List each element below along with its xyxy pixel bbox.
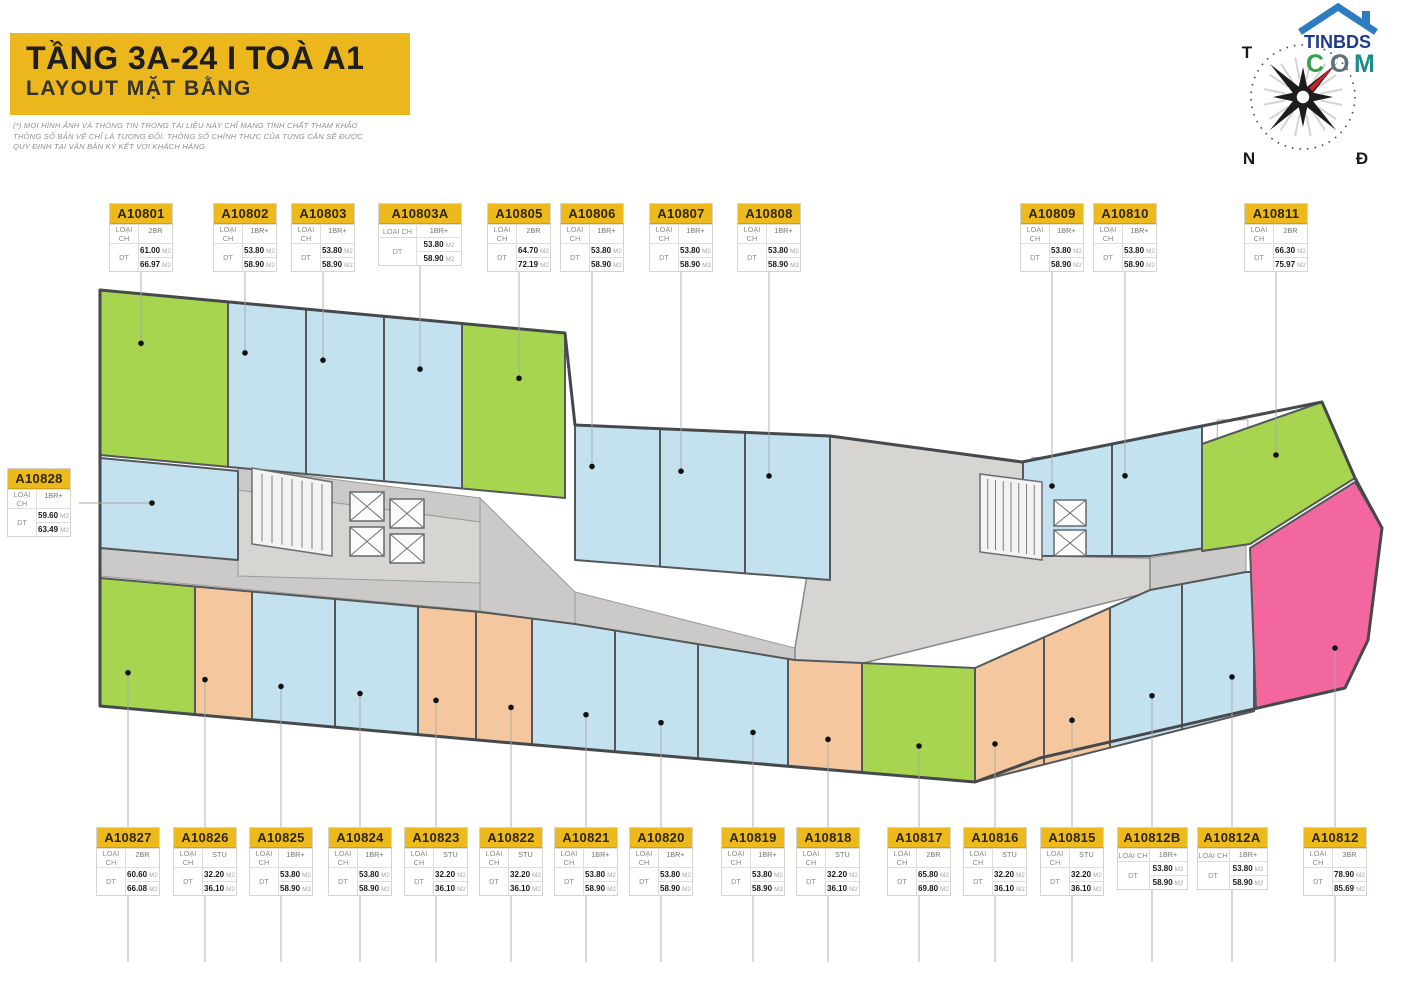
type-key: LOẠI CH bbox=[174, 849, 203, 867]
unit-type: 1BR+ bbox=[1150, 849, 1187, 861]
unit-type: 2BR bbox=[917, 849, 950, 861]
type-key: LOẠI CH bbox=[1304, 849, 1333, 867]
logo-chimney-icon bbox=[1362, 11, 1370, 25]
area-key: DT bbox=[174, 868, 203, 895]
unit-id: A10822 bbox=[480, 828, 542, 848]
unit-label-A10810[interactable]: A10810LOẠI CH1BR+DT53.80M258.90M2 bbox=[1093, 203, 1157, 272]
unit-area: 58.90M2 bbox=[1050, 257, 1083, 271]
unit-type: 1BR+ bbox=[659, 849, 692, 861]
unit-type: STU bbox=[434, 849, 467, 861]
corridor bbox=[480, 498, 575, 624]
area-key: DT bbox=[1021, 244, 1050, 271]
type-key: LOẠI CH bbox=[480, 849, 509, 867]
unit-type: STU bbox=[826, 849, 859, 861]
unit-A10801[interactable] bbox=[100, 290, 228, 467]
unit-area: 63.49M2 bbox=[37, 522, 70, 536]
unit-type: STU bbox=[203, 849, 236, 861]
unit-area: 53.80M2 bbox=[1150, 862, 1187, 875]
unit-id: A10811 bbox=[1245, 204, 1307, 224]
unit-id: A10816 bbox=[964, 828, 1026, 848]
unit-area: 32.20M2 bbox=[203, 868, 236, 881]
unit-type: 1BR+ bbox=[243, 225, 276, 237]
unit-area: 65.80M2 bbox=[917, 868, 950, 881]
unit-id: A10810 bbox=[1094, 204, 1156, 224]
unit-area: 53.80M2 bbox=[659, 868, 692, 881]
unit-type: 1BR+ bbox=[679, 225, 712, 237]
unit-area: 53.80M2 bbox=[1050, 244, 1083, 257]
type-key: LOẠI CH bbox=[405, 849, 434, 867]
area-key: DT bbox=[1304, 868, 1333, 895]
area-key: DT bbox=[738, 244, 767, 271]
unit-area: 32.20M2 bbox=[993, 868, 1026, 881]
type-key: LOẠI CH bbox=[964, 849, 993, 867]
type-key: LOẠI CH bbox=[1094, 225, 1123, 243]
unit-type: 3BR bbox=[1333, 849, 1366, 861]
unit-area: 53.80M2 bbox=[243, 244, 276, 257]
unit-area: 36.10M2 bbox=[1070, 881, 1103, 895]
unit-label-A10826[interactable]: A10826LOẠI CHSTUDT32.20M236.10M2 bbox=[173, 827, 237, 896]
unit-label-A10803[interactable]: A10803LOẠI CH1BR+DT53.80M258.90M2 bbox=[291, 203, 355, 272]
unit-A10817[interactable] bbox=[862, 663, 975, 782]
unit-id: A10827 bbox=[97, 828, 159, 848]
unit-area: 66.08M2 bbox=[126, 881, 159, 895]
unit-A10805[interactable] bbox=[462, 323, 565, 498]
unit-area: 58.90M2 bbox=[321, 257, 354, 271]
area-key: DT bbox=[1041, 868, 1070, 895]
type-key: LOẠI CH bbox=[292, 225, 321, 243]
unit-area: 66.30M2 bbox=[1274, 244, 1307, 257]
unit-id: A10820 bbox=[630, 828, 692, 848]
unit-label-A10806[interactable]: A10806LOẠI CH1BR+DT53.80M258.90M2 bbox=[560, 203, 624, 272]
title-banner: TẦNG 3A-24 I TOÀ A1 LAYOUT MẶT BẰNG bbox=[10, 33, 410, 115]
unit-label-A10821[interactable]: A10821LOẠI CH1BR+DT53.80M258.90M2 bbox=[554, 827, 618, 896]
area-key: DT bbox=[1118, 862, 1150, 889]
unit-area: 58.90M2 bbox=[358, 881, 391, 895]
type-key: LOẠI CH bbox=[1041, 849, 1070, 867]
unit-label-A10802[interactable]: A10802LOẠI CH1BR+DT53.80M258.90M2 bbox=[213, 203, 277, 272]
area-key: DT bbox=[292, 244, 321, 271]
unit-label-A10801[interactable]: A10801LOẠI CH2BRDT61.00M266.97M2 bbox=[109, 203, 173, 272]
unit-type: 1BR+ bbox=[1230, 849, 1267, 861]
area-key: DT bbox=[888, 868, 917, 895]
type-key: LOẠI CH bbox=[488, 225, 517, 243]
unit-area: 58.90M2 bbox=[1123, 257, 1156, 271]
unit-area: 58.90M2 bbox=[751, 881, 784, 895]
unit-type: 1BR+ bbox=[1050, 225, 1083, 237]
unit-type: 2BR bbox=[126, 849, 159, 861]
type-key: LOẠI CH bbox=[379, 225, 417, 237]
unit-A10824[interactable] bbox=[335, 599, 418, 735]
type-key: LOẠI CH bbox=[797, 849, 826, 867]
compass-letter-south: N bbox=[1243, 149, 1255, 168]
area-key: DT bbox=[1094, 244, 1123, 271]
unit-type: 1BR+ bbox=[321, 225, 354, 237]
unit-A10818[interactable] bbox=[788, 659, 862, 773]
unit-id: A10818 bbox=[797, 828, 859, 848]
unit-A10819[interactable] bbox=[698, 644, 788, 766]
unit-area: 58.90M2 bbox=[243, 257, 276, 271]
type-key: LOẠI CH bbox=[555, 849, 584, 867]
unit-area: 59.60M2 bbox=[37, 509, 70, 522]
unit-label-A10816[interactable]: A10816LOẠI CHSTUDT32.20M236.10M2 bbox=[963, 827, 1027, 896]
unit-area: 36.10M2 bbox=[434, 881, 467, 895]
type-key: LOẠI CH bbox=[329, 849, 358, 867]
area-key: DT bbox=[555, 868, 584, 895]
area-key: DT bbox=[214, 244, 243, 271]
area-key: DT bbox=[630, 868, 659, 895]
logo-text-letter: O bbox=[1330, 50, 1349, 78]
unit-area: 58.90M2 bbox=[659, 881, 692, 895]
unit-label-A10820[interactable]: A10820LOẠI CH1BR+DT53.80M258.90M2 bbox=[629, 827, 693, 896]
unit-area: 53.80M2 bbox=[679, 244, 712, 257]
area-key: DT bbox=[8, 509, 37, 536]
unit-area: 58.90M2 bbox=[279, 881, 312, 895]
unit-area: 58.90M2 bbox=[417, 251, 461, 265]
area-key: DT bbox=[1245, 244, 1274, 271]
unit-type: 1BR+ bbox=[751, 849, 784, 861]
unit-label-A10818[interactable]: A10818LOẠI CHSTUDT32.20M236.10M2 bbox=[796, 827, 860, 896]
unit-A10826[interactable] bbox=[195, 587, 252, 720]
area-key: DT bbox=[110, 244, 139, 271]
area-key: DT bbox=[650, 244, 679, 271]
area-key: DT bbox=[722, 868, 751, 895]
unit-A10812B[interactable] bbox=[1110, 584, 1182, 748]
unit-label-A10811[interactable]: A10811LOẠI CH2BRDT66.30M275.97M2 bbox=[1244, 203, 1308, 272]
unit-area: 53.80M2 bbox=[767, 244, 800, 257]
unit-id: A10803 bbox=[292, 204, 354, 224]
unit-area: 36.10M2 bbox=[509, 881, 542, 895]
area-key: DT bbox=[480, 868, 509, 895]
unit-label-A10803A[interactable]: A10803ALOẠI CH1BR+DT53.80M258.90M2 bbox=[378, 203, 462, 266]
type-key: LOẠI CH bbox=[650, 225, 679, 243]
unit-label-A10823[interactable]: A10823LOẠI CHSTUDT32.20M236.10M2 bbox=[404, 827, 468, 896]
unit-id: A10815 bbox=[1041, 828, 1103, 848]
type-key: LOẠI CH bbox=[738, 225, 767, 243]
unit-area: 58.90M2 bbox=[679, 257, 712, 271]
unit-area: 32.20M2 bbox=[434, 868, 467, 881]
unit-A10802[interactable] bbox=[228, 302, 306, 474]
unit-type: 1BR+ bbox=[279, 849, 312, 861]
unit-A10810[interactable] bbox=[1112, 426, 1202, 556]
unit-id: A10809 bbox=[1021, 204, 1083, 224]
unit-area: 58.90M2 bbox=[584, 881, 617, 895]
unit-type: STU bbox=[993, 849, 1026, 861]
unit-label-A10812A[interactable]: A10812ALOẠI CH1BR+DT53.80M258.90M2 bbox=[1197, 827, 1268, 890]
unit-area: 36.10M2 bbox=[203, 881, 236, 895]
type-key: LOẠI CH bbox=[630, 849, 659, 867]
unit-type: 1BR+ bbox=[417, 225, 461, 237]
unit-area: 36.10M2 bbox=[993, 881, 1026, 895]
area-key: DT bbox=[97, 868, 126, 895]
unit-label-A10808[interactable]: A10808LOẠI CH1BR+DT53.80M258.90M2 bbox=[737, 203, 801, 272]
unit-id: A10806 bbox=[561, 204, 623, 224]
unit-area: 32.20M2 bbox=[509, 868, 542, 881]
unit-id: A10808 bbox=[738, 204, 800, 224]
unit-A10825[interactable] bbox=[252, 592, 335, 728]
unit-label-A10805[interactable]: A10805LOẠI CH2BRDT64.70M272.19M2 bbox=[487, 203, 551, 272]
type-key: LOẠI CH bbox=[1021, 225, 1050, 243]
unit-area: 85.69M2 bbox=[1333, 881, 1366, 895]
type-key: LOẠI CH bbox=[722, 849, 751, 867]
type-key: LOẠI CH bbox=[97, 849, 126, 867]
page-title: TẦNG 3A-24 I TOÀ A1 bbox=[26, 40, 394, 76]
unit-area: 53.80M2 bbox=[321, 244, 354, 257]
unit-id: A10828 bbox=[8, 469, 70, 489]
unit-A10812A[interactable] bbox=[1182, 572, 1254, 729]
area-key: DT bbox=[1198, 862, 1230, 889]
unit-area: 53.80M2 bbox=[590, 244, 623, 257]
unit-label-A10807[interactable]: A10807LOẠI CH1BR+DT53.80M258.90M2 bbox=[649, 203, 713, 272]
compass-letter-west: T bbox=[1242, 43, 1253, 62]
unit-area: 58.90M2 bbox=[1230, 875, 1267, 889]
unit-label-A10817[interactable]: A10817LOẠI CH2BRDT65.80M269.80M2 bbox=[887, 827, 951, 896]
type-key: LOẠI CH bbox=[214, 225, 243, 243]
area-key: DT bbox=[561, 244, 590, 271]
unit-A10808[interactable] bbox=[745, 432, 830, 580]
unit-label-A10828[interactable]: A10828LOẠI CH1BR+DT59.60M263.49M2 bbox=[7, 468, 71, 537]
unit-id: A10824 bbox=[329, 828, 391, 848]
unit-area: 32.20M2 bbox=[1070, 868, 1103, 881]
unit-id: A10812 bbox=[1304, 828, 1366, 848]
floorplan-page: TNĐTINBDSCOM TẦNG 3A-24 I TOÀ A1 LAYOUT … bbox=[0, 0, 1417, 1001]
unit-area: 53.80M2 bbox=[1123, 244, 1156, 257]
unit-id: A10825 bbox=[250, 828, 312, 848]
unit-id: A10807 bbox=[650, 204, 712, 224]
type-key: LOẠI CH bbox=[8, 490, 37, 508]
unit-id: A10802 bbox=[214, 204, 276, 224]
unit-label-A10809[interactable]: A10809LOẠI CH1BR+DT53.80M258.90M2 bbox=[1020, 203, 1084, 272]
unit-label-A10812[interactable]: A10812LOẠI CH3BRDT78.90M285.69M2 bbox=[1303, 827, 1367, 896]
unit-area: 53.80M2 bbox=[417, 238, 461, 251]
unit-area: 36.10M2 bbox=[826, 881, 859, 895]
area-key: DT bbox=[329, 868, 358, 895]
tinbds-logo: TINBDSCOM bbox=[1300, 7, 1376, 78]
compass-letter-east: Đ bbox=[1356, 149, 1368, 168]
area-key: DT bbox=[405, 868, 434, 895]
area-key: DT bbox=[797, 868, 826, 895]
unit-label-A10824[interactable]: A10824LOẠI CH1BR+DT53.80M258.90M2 bbox=[328, 827, 392, 896]
unit-label-A10827[interactable]: A10827LOẠI CH2BRDT60.60M266.08M2 bbox=[96, 827, 160, 896]
unit-label-A10822[interactable]: A10822LOẠI CHSTUDT32.20M236.10M2 bbox=[479, 827, 543, 896]
unit-type: 1BR+ bbox=[584, 849, 617, 861]
unit-label-A10812B[interactable]: A10812BLOẠI CH1BR+DT53.80M258.90M2 bbox=[1117, 827, 1188, 890]
unit-area: 53.80M2 bbox=[1230, 862, 1267, 875]
type-key: LOẠI CH bbox=[561, 225, 590, 243]
unit-A10803[interactable] bbox=[306, 309, 384, 481]
unit-area: 61.00M2 bbox=[139, 244, 172, 257]
unit-type: 2BR bbox=[1274, 225, 1307, 237]
unit-area: 78.90M2 bbox=[1333, 868, 1366, 881]
type-key: LOẠI CH bbox=[888, 849, 917, 867]
unit-id: A10812A bbox=[1198, 828, 1267, 848]
unit-id: A10812B bbox=[1118, 828, 1187, 848]
unit-id: A10803A bbox=[379, 204, 461, 224]
unit-label-A10819[interactable]: A10819LOẠI CH1BR+DT53.80M258.90M2 bbox=[721, 827, 785, 896]
unit-area: 72.19M2 bbox=[517, 257, 550, 271]
unit-type: 2BR bbox=[517, 225, 550, 237]
logo-text-letter: M bbox=[1354, 50, 1375, 78]
unit-A10803A[interactable] bbox=[384, 316, 462, 488]
unit-id: A10817 bbox=[888, 828, 950, 848]
unit-type: STU bbox=[509, 849, 542, 861]
unit-id: A10801 bbox=[110, 204, 172, 224]
unit-type: 1BR+ bbox=[37, 490, 70, 502]
unit-id: A10826 bbox=[174, 828, 236, 848]
unit-area: 66.97M2 bbox=[139, 257, 172, 271]
unit-A10821[interactable] bbox=[532, 619, 615, 752]
type-key: LOẠI CH bbox=[1118, 849, 1150, 861]
unit-area: 53.80M2 bbox=[751, 868, 784, 881]
unit-type: STU bbox=[1070, 849, 1103, 861]
logo-text-top: TINBDS bbox=[1304, 32, 1371, 52]
area-key: DT bbox=[964, 868, 993, 895]
unit-label-A10815[interactable]: A10815LOẠI CHSTUDT32.20M236.10M2 bbox=[1040, 827, 1104, 896]
unit-id: A10805 bbox=[488, 204, 550, 224]
logo-text-letter: C bbox=[1306, 50, 1324, 78]
unit-type: 1BR+ bbox=[767, 225, 800, 237]
unit-type: 1BR+ bbox=[1123, 225, 1156, 237]
type-key: LOẠI CH bbox=[250, 849, 279, 867]
page-subtitle: LAYOUT MẶT BẰNG bbox=[26, 76, 394, 102]
unit-A10806[interactable] bbox=[575, 425, 660, 567]
type-key: LOẠI CH bbox=[110, 225, 139, 243]
unit-A10807[interactable] bbox=[660, 429, 745, 574]
type-key: LOẠI CH bbox=[1245, 225, 1274, 243]
unit-area: 58.90M2 bbox=[1150, 875, 1187, 889]
unit-A10828[interactable] bbox=[100, 458, 238, 560]
unit-A10815[interactable] bbox=[1044, 608, 1110, 765]
unit-label-A10825[interactable]: A10825LOẠI CH1BR+DT53.80M258.90M2 bbox=[249, 827, 313, 896]
unit-area: 75.97M2 bbox=[1274, 257, 1307, 271]
unit-id: A10823 bbox=[405, 828, 467, 848]
unit-area: 32.20M2 bbox=[826, 868, 859, 881]
disclaimer-text: (*) MỌI HÌNH ẢNH VÀ THÔNG TIN TRONG TÀI … bbox=[13, 121, 363, 153]
unit-A10820[interactable] bbox=[615, 631, 698, 759]
unit-area: 58.90M2 bbox=[767, 257, 800, 271]
type-key: LOẠI CH bbox=[1198, 849, 1230, 861]
area-key: DT bbox=[379, 238, 417, 265]
unit-A10823[interactable] bbox=[418, 606, 476, 739]
unit-area: 64.70M2 bbox=[517, 244, 550, 257]
area-key: DT bbox=[488, 244, 517, 271]
area-key: DT bbox=[250, 868, 279, 895]
unit-A10822[interactable] bbox=[476, 612, 532, 745]
unit-area: 60.60M2 bbox=[126, 868, 159, 881]
unit-area: 53.80M2 bbox=[279, 868, 312, 881]
unit-type: 2BR bbox=[139, 225, 172, 237]
unit-area: 53.80M2 bbox=[358, 868, 391, 881]
unit-type: 1BR+ bbox=[590, 225, 623, 237]
unit-A10827[interactable] bbox=[100, 578, 195, 715]
unit-area: 58.90M2 bbox=[590, 257, 623, 271]
unit-area: 53.80M2 bbox=[584, 868, 617, 881]
unit-id: A10821 bbox=[555, 828, 617, 848]
unit-type: 1BR+ bbox=[358, 849, 391, 861]
unit-id: A10819 bbox=[722, 828, 784, 848]
unit-area: 69.80M2 bbox=[917, 881, 950, 895]
